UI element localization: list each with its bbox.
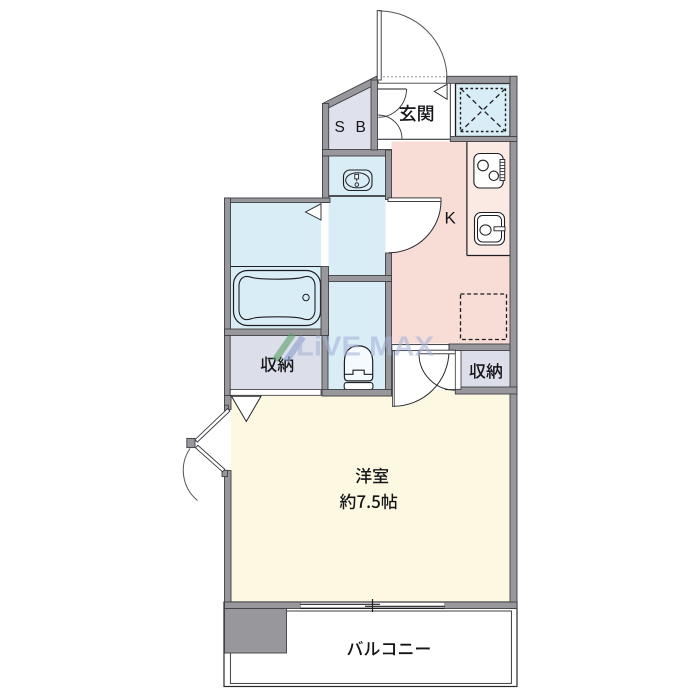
svg-text:LiVE MAX: LiVE MAX	[296, 331, 434, 362]
svg-text:K: K	[445, 209, 457, 228]
svg-text:S B: S B	[335, 119, 370, 136]
